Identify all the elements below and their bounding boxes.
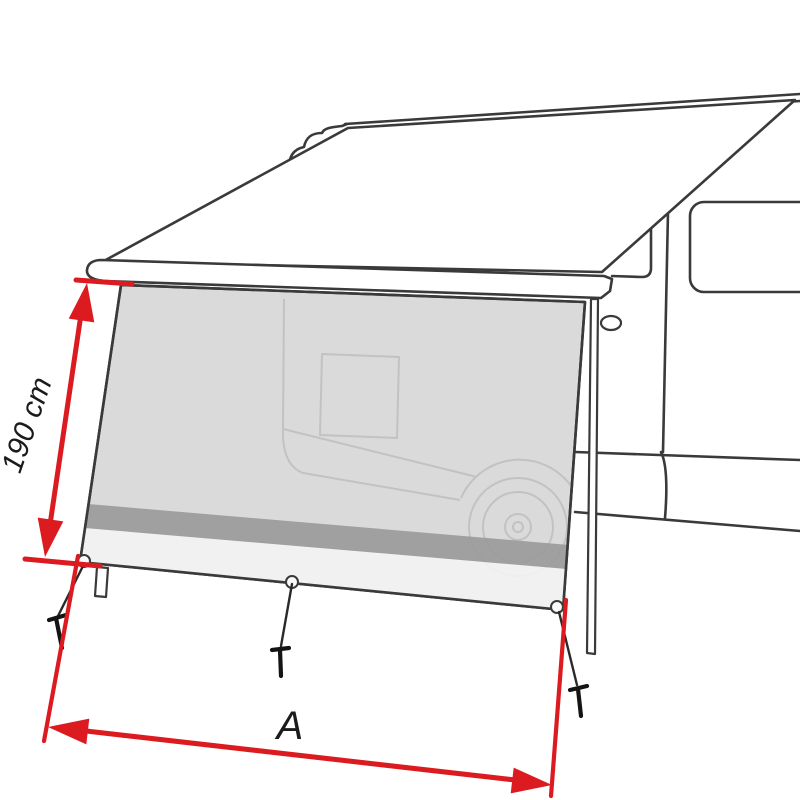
height-dim-arrowhead-down [38, 518, 64, 557]
support-leg-right [587, 299, 598, 654]
caravan-skirt-lines [575, 452, 800, 531]
wall-handle [601, 316, 621, 330]
caravan-door-edge [661, 212, 668, 518]
eyelet-right [551, 601, 563, 613]
width-dim-arrowhead-left [48, 719, 89, 745]
width-dim-extension-right [551, 600, 566, 796]
front-panel [78, 285, 585, 613]
awning-front-panel-diagram: 190 cm A [0, 0, 800, 800]
support-leg-left-tip [95, 567, 108, 597]
width-dim-arrowhead-right [511, 768, 552, 794]
height-dimension-label: 190 cm [0, 373, 59, 477]
diagram-canvas: 190 cm A [0, 0, 800, 800]
caravan-window [690, 202, 800, 292]
tent-peg-middle [272, 648, 289, 676]
height-dim-arrowhead-up [69, 283, 95, 322]
tent-peg-right [570, 686, 587, 716]
width-dim-extension-left [44, 556, 78, 741]
width-dimension-label: A [275, 704, 304, 748]
height-dim-line [47, 294, 84, 545]
guy-rope-middle [281, 584, 292, 646]
